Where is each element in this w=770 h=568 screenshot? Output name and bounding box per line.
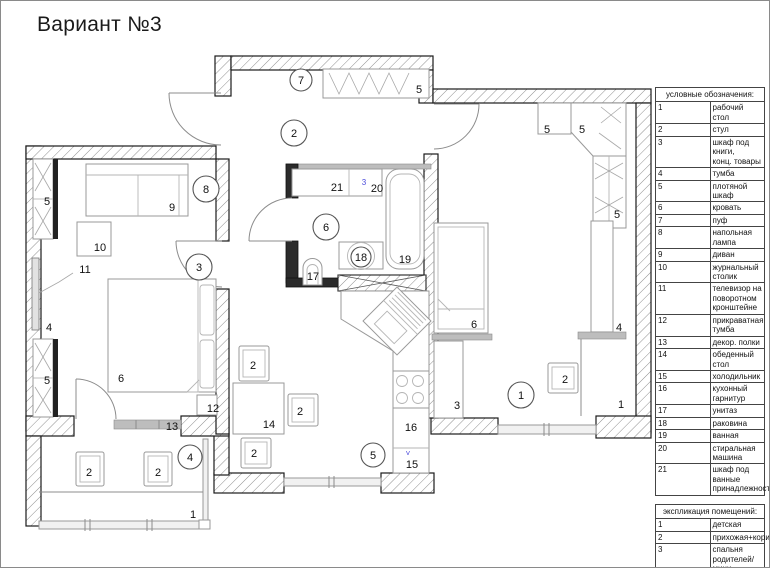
- svg-text:4: 4: [46, 322, 52, 334]
- plan-label-plain: 10: [94, 242, 106, 254]
- legend-row-label: унитаз: [710, 405, 765, 417]
- svg-text:1: 1: [618, 399, 624, 411]
- plan-label-circled: 4: [178, 445, 202, 469]
- legend-row-label: декор. полки: [710, 336, 765, 348]
- furniture-parents-room: [32, 159, 217, 429]
- window-children: [498, 425, 596, 434]
- svg-text:5: 5: [416, 84, 422, 96]
- plan-label-plain: 5: [544, 124, 550, 136]
- plan-label-blue: 3: [362, 178, 367, 187]
- legend-row: 18раковина: [656, 417, 765, 429]
- svg-text:2: 2: [562, 374, 568, 386]
- svg-text:5: 5: [579, 124, 585, 136]
- legend-row-number: 13: [656, 336, 711, 348]
- plan-label-plain: 9: [169, 202, 175, 214]
- furniture-children-room: [432, 103, 626, 418]
- plan-label-plain: 2: [250, 360, 256, 372]
- legend-row-label: телевизор на поворотном кронштейне: [710, 283, 765, 314]
- svg-text:2: 2: [251, 448, 257, 460]
- legend-row-number: 3: [656, 544, 711, 568]
- legend-row: 5плотяной шкаф: [656, 180, 765, 202]
- plan-label-plain: 17: [307, 271, 319, 283]
- legend-row: 9диван: [656, 249, 765, 261]
- svg-text:1: 1: [518, 390, 524, 402]
- legend-row-number: 10: [656, 261, 711, 283]
- svg-text:3: 3: [454, 400, 460, 412]
- plan-label-plain: 1: [618, 399, 624, 411]
- legend-row-label: пуф: [710, 214, 765, 226]
- legend-row: 11телевизор на поворотном кронштейне: [656, 283, 765, 314]
- legend-row-label: шкаф под книги, конц. товары: [710, 136, 765, 167]
- legend-row-number: 12: [656, 314, 711, 336]
- legend-row: 17унитаз: [656, 405, 765, 417]
- wardrobe-square: [538, 103, 571, 134]
- legend-row-number: 2: [656, 531, 711, 543]
- svg-text:2: 2: [291, 128, 297, 140]
- legend-row-label: раковина: [710, 417, 765, 429]
- furniture-kitchen: [233, 287, 431, 473]
- legend-row-number: 19: [656, 430, 711, 442]
- plan-label-plain: 14: [263, 419, 275, 431]
- plan-label-plain: 2: [297, 406, 303, 418]
- svg-text:2: 2: [86, 467, 92, 479]
- legend-rooms-header: экспликация помещений:: [656, 504, 765, 518]
- legend-row-label: ванная: [710, 430, 765, 442]
- svg-text:5: 5: [370, 450, 376, 462]
- legend-row: 8напольная лампа: [656, 227, 765, 249]
- svg-text:17: 17: [307, 271, 319, 283]
- svg-text:16: 16: [405, 422, 417, 434]
- svg-text:6: 6: [323, 222, 329, 234]
- plan-label-circled: 8: [193, 176, 219, 202]
- legend-row: 2стул: [656, 124, 765, 136]
- legend-symbols-table: условные обозначения: 1рабочий стол2стул…: [655, 87, 765, 496]
- plan-label-plain: 5: [44, 196, 50, 208]
- legend-row-number: 2: [656, 124, 711, 136]
- legend-row: 16кухонный гарнитур: [656, 383, 765, 405]
- plan-label-plain: 11: [79, 264, 90, 276]
- svg-text:8: 8: [203, 184, 209, 196]
- legend-row-number: 4: [656, 168, 711, 180]
- svg-text:6: 6: [471, 319, 477, 331]
- svg-text:12: 12: [207, 403, 219, 415]
- legend-row: 6кровать: [656, 202, 765, 214]
- svg-text:4: 4: [187, 452, 193, 464]
- legend-row-number: 20: [656, 442, 711, 464]
- legend-row: 3спальня родителей/ мини гостиная: [656, 544, 765, 568]
- legend-row-label: журнальный столик: [710, 261, 765, 283]
- svg-text:2: 2: [155, 467, 161, 479]
- legend-row-label: прикраватная тумба: [710, 314, 765, 336]
- legend-row-label: шкаф под ванные принадлежности: [710, 464, 765, 495]
- legend-row-number: 6: [656, 202, 711, 214]
- plan-label-plain: 12: [207, 403, 219, 415]
- plan-label-plain: 20: [371, 183, 383, 195]
- legend-row: 1рабочий стол: [656, 102, 765, 124]
- plan-label-plain: 5: [416, 84, 422, 96]
- plan-label-plain: 15: [406, 459, 418, 471]
- svg-text:19: 19: [399, 254, 411, 266]
- children-room-door: [434, 104, 479, 149]
- plan-label-plain: 4: [46, 322, 52, 334]
- dining-table: [233, 383, 284, 434]
- legend-row-number: 11: [656, 283, 711, 314]
- window-kitchen: [284, 478, 381, 486]
- plan-label-plain: 5: [44, 375, 50, 387]
- legend-row-number: 7: [656, 214, 711, 226]
- legend-row: 4тумба: [656, 168, 765, 180]
- legend-row-number: 15: [656, 370, 711, 382]
- legend-row: 1детская: [656, 519, 765, 531]
- legend-row-label: кухонный гарнитур: [710, 383, 765, 405]
- entry-door: [169, 93, 221, 145]
- legend-row: 13декор. полки: [656, 336, 765, 348]
- stove: [393, 371, 429, 408]
- drawing-page: Вариант №3: [0, 0, 770, 568]
- legend-row: 14обеденный стол: [656, 349, 765, 371]
- svg-text:˅: ˅: [406, 449, 411, 458]
- legend-row-label: прихожая+коридор: [710, 531, 765, 543]
- legend-row-label: детская: [710, 519, 765, 531]
- svg-text:11: 11: [79, 264, 90, 276]
- furniture-hallway: [323, 69, 429, 98]
- legend-row-number: 18: [656, 417, 711, 429]
- window-balcony: [39, 521, 203, 529]
- legend-row-label: обеденный стол: [710, 349, 765, 371]
- plan-label-plain: 2: [562, 374, 568, 386]
- plan-label-plain: 6: [118, 373, 124, 385]
- bathroom-door: [249, 198, 292, 241]
- svg-text:1: 1: [190, 509, 196, 521]
- plan-label-blue: ˅: [406, 449, 411, 458]
- legend-row-number: 1: [656, 519, 711, 531]
- legend-row-label: плотяной шкаф: [710, 180, 765, 202]
- legend-row-label: стул: [710, 124, 765, 136]
- svg-text:5: 5: [614, 209, 620, 221]
- svg-text:3: 3: [196, 262, 202, 274]
- svg-text:2: 2: [297, 406, 303, 418]
- legend-row: 2прихожая+коридор: [656, 531, 765, 543]
- plan-label-circled: 2: [281, 120, 307, 146]
- plan-label-circled: 3: [186, 254, 212, 280]
- plan-label-circled: 6: [313, 214, 339, 240]
- legend-row-number: 21: [656, 464, 711, 495]
- plan-label-plain: 2: [86, 467, 92, 479]
- svg-text:5: 5: [44, 196, 50, 208]
- tv-bracket: [32, 258, 73, 330]
- legend-row: 15холодильник: [656, 370, 765, 382]
- svg-text:5: 5: [44, 375, 50, 387]
- legend-row-label: холодильник: [710, 370, 765, 382]
- legend-row: 10журнальный столик: [656, 261, 765, 283]
- furniture-bathroom: [292, 169, 424, 285]
- plan-label-circled: 18: [351, 247, 371, 267]
- svg-text:15: 15: [406, 459, 418, 471]
- plan-label-plain: 3: [454, 400, 460, 412]
- plan-label-circled: 5: [361, 443, 385, 467]
- legend-row-label: кровать: [710, 202, 765, 214]
- legend-row-number: 16: [656, 383, 711, 405]
- balcony-glazing-side: [203, 439, 208, 523]
- plan-label-plain: 5: [614, 209, 620, 221]
- legend-rooms-table: экспликация помещений: 1детская2прихожая…: [655, 504, 765, 568]
- balcony-corner-post: [199, 520, 210, 529]
- svg-text:5: 5: [544, 124, 550, 136]
- plan-label-plain: 21: [331, 182, 343, 194]
- plan-label-plain: 4: [616, 322, 622, 334]
- wardrobe-tall: [593, 156, 626, 228]
- legend-row-number: 8: [656, 227, 711, 249]
- plan-label-plain: 19: [399, 254, 411, 266]
- bed-parents: [108, 279, 216, 392]
- vent-duct: [338, 275, 426, 291]
- svg-text:4: 4: [616, 322, 622, 334]
- svg-text:21: 21: [331, 182, 343, 194]
- legend-row-number: 14: [656, 349, 711, 371]
- legend-column: условные обозначения: 1рабочий стол2стул…: [655, 87, 765, 568]
- legend-row-number: 9: [656, 249, 711, 261]
- legend-row-number: 1: [656, 102, 711, 124]
- legend-row-label: рабочий стол: [710, 102, 765, 124]
- svg-text:18: 18: [355, 252, 367, 264]
- plan-label-circled: 7: [290, 69, 312, 91]
- svg-text:9: 9: [169, 202, 175, 214]
- plan-label-plain: 5: [579, 124, 585, 136]
- legend-row-number: 17: [656, 405, 711, 417]
- svg-text:10: 10: [94, 242, 106, 254]
- plan-label-circled: 1: [508, 382, 534, 408]
- svg-text:20: 20: [371, 183, 383, 195]
- cabinet-tall: [591, 221, 613, 332]
- plan-label-plain: 16: [405, 422, 417, 434]
- plan-label-plain: 1: [190, 509, 196, 521]
- legend-row: 3шкаф под книги, конц. товары: [656, 136, 765, 167]
- windows: [39, 423, 596, 531]
- plan-label-plain: 6: [471, 319, 477, 331]
- hall-wardrobe: [323, 69, 429, 98]
- svg-text:14: 14: [263, 419, 275, 431]
- svg-text:2: 2: [250, 360, 256, 372]
- svg-text:6: 6: [118, 373, 124, 385]
- legend-row: 12прикраватная тумба: [656, 314, 765, 336]
- bed-children: [432, 223, 492, 340]
- legend-row: 20стиральная машина: [656, 442, 765, 464]
- svg-text:7: 7: [298, 75, 304, 87]
- legend-row-number: 3: [656, 136, 711, 167]
- legend-row-label: стиральная машина: [710, 442, 765, 464]
- legend-row-label: диван: [710, 249, 765, 261]
- legend-row-label: спальня родителей/ мини гостиная: [710, 544, 765, 568]
- plan-label-plain: 2: [155, 467, 161, 479]
- plan-label-plain: 13: [166, 421, 178, 433]
- legend-symbols-header: условные обозначения:: [656, 88, 765, 102]
- legend-row-number: 5: [656, 180, 711, 202]
- legend-row-label: напольная лампа: [710, 227, 765, 249]
- svg-text:13: 13: [166, 421, 178, 433]
- legend-row: 19ванная: [656, 430, 765, 442]
- plan-label-plain: 2: [251, 448, 257, 460]
- legend-row-label: тумба: [710, 168, 765, 180]
- legend-row: 7пуф: [656, 214, 765, 226]
- legend-row: 21шкаф под ванные принадлежности: [656, 464, 765, 495]
- svg-text:3: 3: [362, 178, 367, 187]
